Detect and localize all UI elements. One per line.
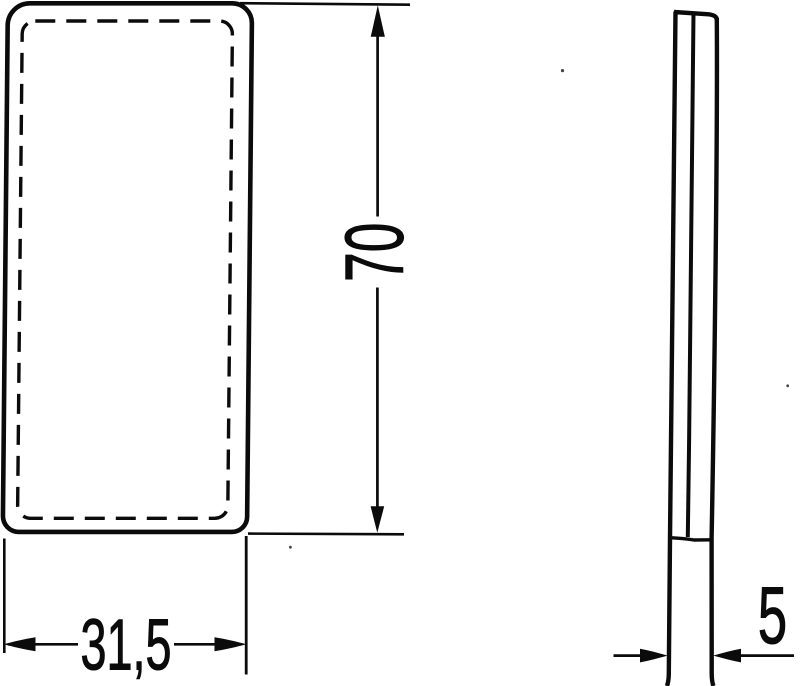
svg-text:5: 5 bbox=[758, 570, 787, 660]
svg-text:70: 70 bbox=[328, 223, 421, 282]
svg-text:31,5: 31,5 bbox=[80, 604, 171, 685]
